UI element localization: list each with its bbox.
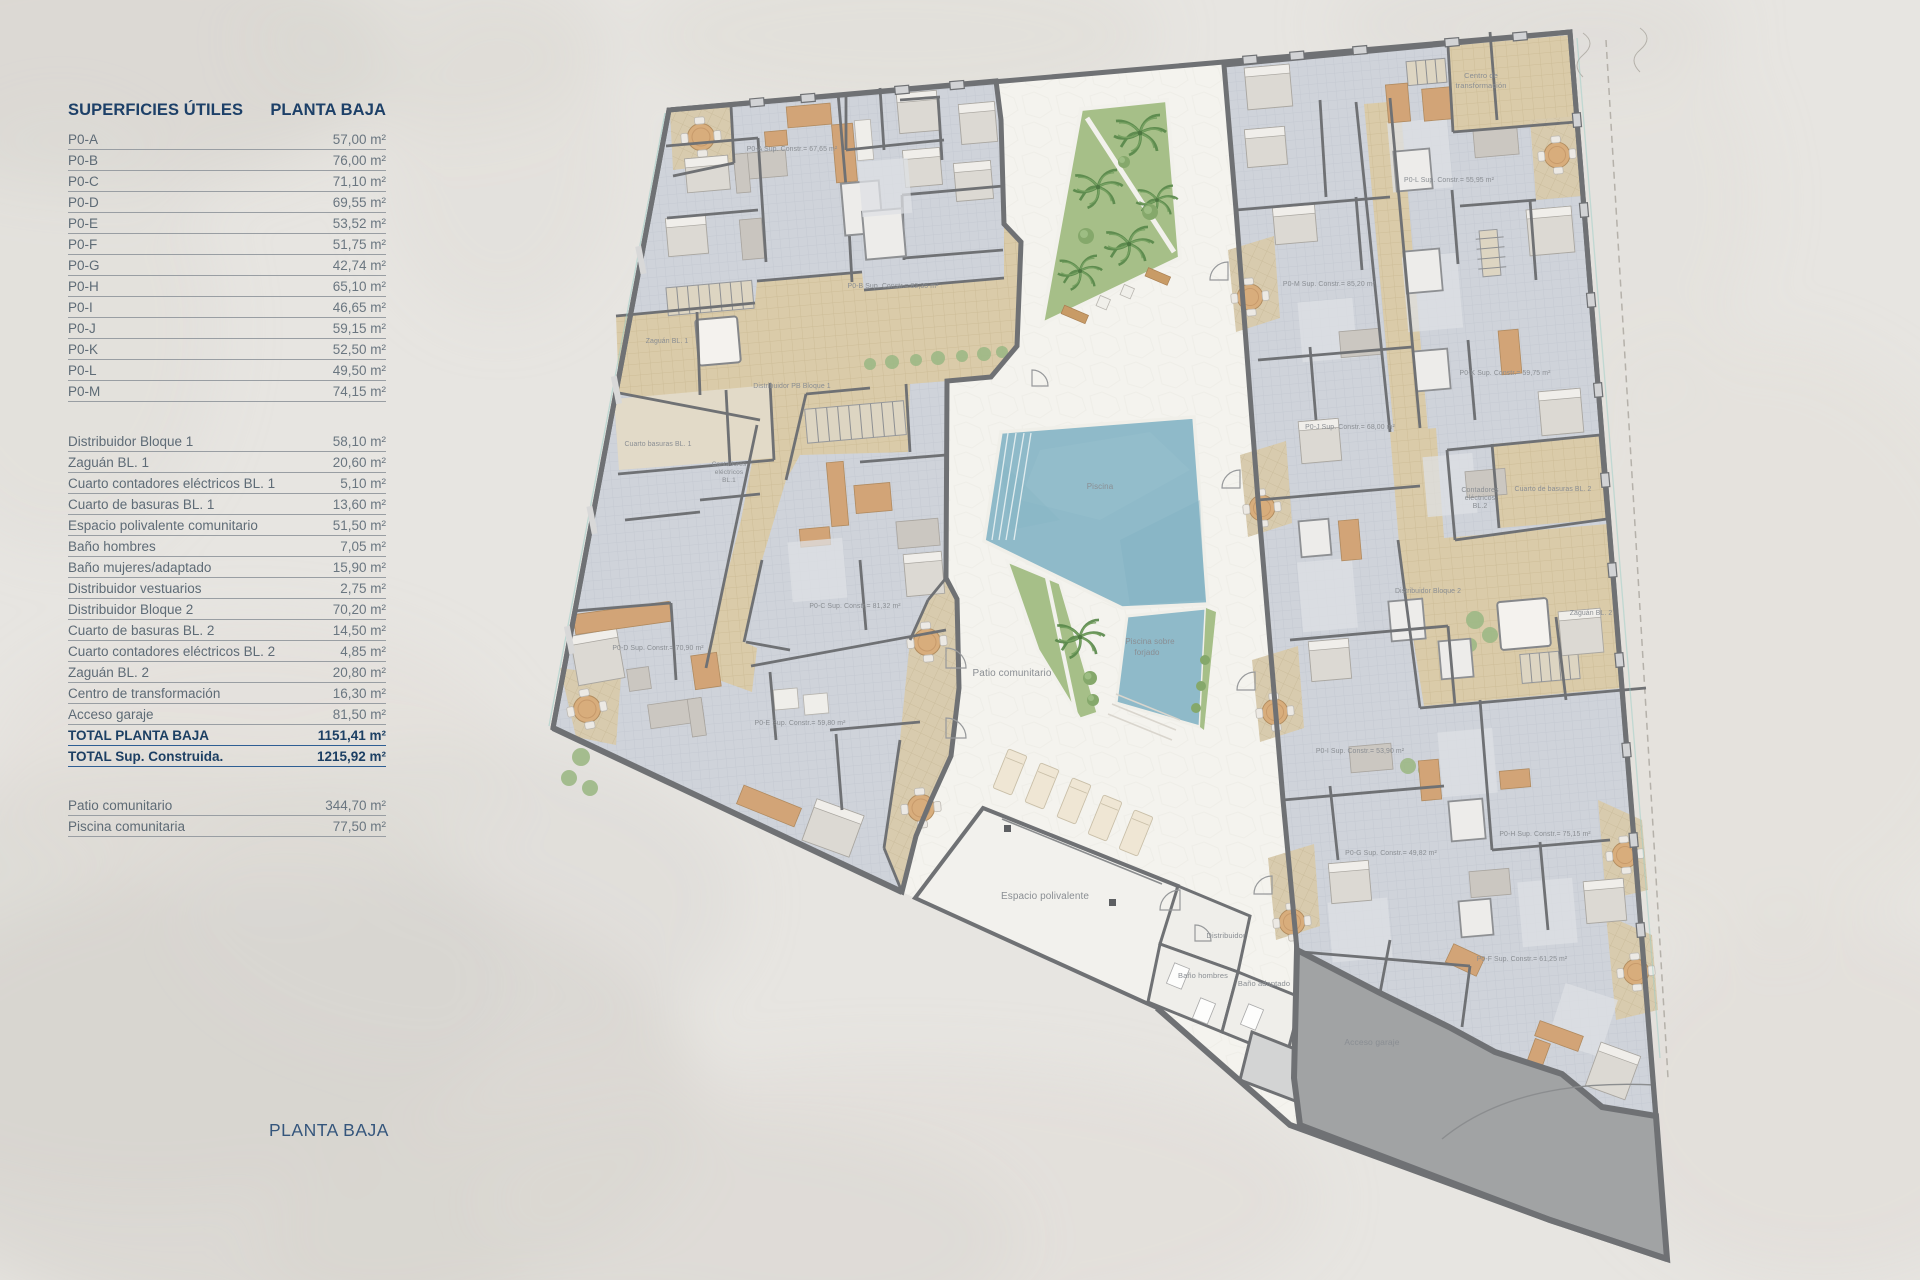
svg-text:eléctricos: eléctricos [715,469,744,476]
svg-text:P0-A Sup. Constr.= 67,65 m²: P0-A Sup. Constr.= 67,65 m² [747,146,838,153]
svg-text:Zaguán BL. 2: Zaguán BL. 2 [1570,610,1613,617]
svg-text:BL.2: BL.2 [1473,503,1488,510]
svg-text:P0-J Sup. Constr.= 68,00 m²: P0-J Sup. Constr.= 68,00 m² [1305,424,1395,431]
svg-text:P0-I Sup. Constr.= 53,90 m²: P0-I Sup. Constr.= 53,90 m² [1316,748,1405,755]
svg-text:BL.1: BL.1 [722,477,736,484]
svg-text:Piscina: Piscina [1087,482,1114,491]
svg-text:eléctricos: eléctricos [1465,495,1496,502]
svg-text:Patio comunitario: Patio comunitario [973,668,1052,679]
svg-text:Baño hombres: Baño hombres [1178,971,1228,980]
svg-text:P0-E Sup. Constr.= 59,80 m²: P0-E Sup. Constr.= 59,80 m² [755,720,847,727]
svg-text:P0-K Sup. Constr.= 59,75 m²: P0-K Sup. Constr.= 59,75 m² [1460,370,1552,377]
svg-text:Distribuidor Bloque 2: Distribuidor Bloque 2 [1395,588,1461,595]
svg-text:Distribuidor: Distribuidor [1206,931,1246,940]
svg-text:Distribuidor PB Bloque 1: Distribuidor PB Bloque 1 [753,383,831,390]
svg-text:transformación: transformación [1455,81,1506,90]
svg-text:P0-B Sup. Constr.= 82,35 m²: P0-B Sup. Constr.= 82,35 m² [848,283,940,290]
svg-text:Contadores: Contadores [712,461,747,468]
svg-text:forjado: forjado [1134,648,1160,657]
svg-text:P0-M Sup. Constr.= 85,20 m²: P0-M Sup. Constr.= 85,20 m² [1283,281,1376,288]
svg-text:Cuarto basuras BL. 1: Cuarto basuras BL. 1 [624,441,691,448]
svg-text:P0-G Sup. Constr.= 49,82 m²: P0-G Sup. Constr.= 49,82 m² [1345,850,1437,857]
svg-text:Cuarto de basuras BL. 2: Cuarto de basuras BL. 2 [1515,486,1592,493]
svg-text:Piscina sobre: Piscina sobre [1125,637,1175,646]
svg-text:P0-L Sup. Constr.= 55,95 m²: P0-L Sup. Constr.= 55,95 m² [1404,177,1495,184]
svg-text:Espacio polivalente: Espacio polivalente [1001,891,1089,902]
svg-text:P0-H Sup. Constr.= 75,15 m²: P0-H Sup. Constr.= 75,15 m² [1499,831,1591,838]
svg-text:P0-D Sup. Constr.= 70,90 m²: P0-D Sup. Constr.= 70,90 m² [612,645,704,652]
svg-text:Centro de: Centro de [1464,71,1498,80]
svg-text:Acceso garaje: Acceso garaje [1344,1037,1399,1047]
svg-text:Zaguán BL. 1: Zaguán BL. 1 [646,338,689,345]
svg-text:P0-C Sup. Constr.= 81,32 m²: P0-C Sup. Constr.= 81,32 m² [809,603,901,610]
svg-text:P0-F Sup. Constr.= 61,25 m²: P0-F Sup. Constr.= 61,25 m² [1477,956,1568,963]
svg-text:Contadores: Contadores [1461,487,1499,494]
svg-text:Baño adaptado: Baño adaptado [1238,979,1290,988]
